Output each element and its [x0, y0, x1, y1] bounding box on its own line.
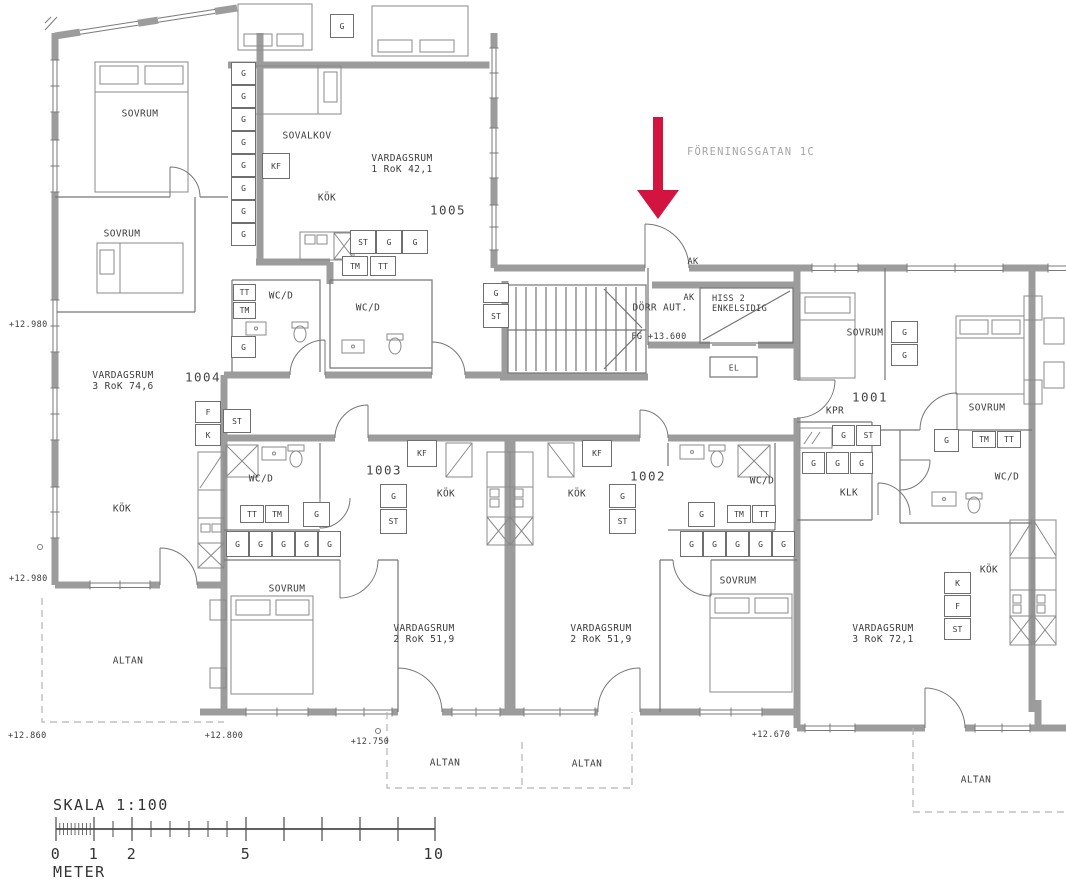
room-name: VARDAGSRUM: [852, 623, 913, 634]
apartment-number-1004: 1004: [185, 370, 221, 385]
cabinet-st: ST: [380, 509, 407, 534]
cabinet-g: G: [272, 531, 295, 557]
cabinet-g: G: [295, 531, 318, 557]
room-label-altan: ALTAN: [572, 759, 603, 770]
room-label-altan: ALTAN: [113, 656, 144, 667]
cabinet-st: ST: [856, 425, 881, 446]
walls: [55, 8, 1066, 728]
dryer-tt: TT: [370, 256, 396, 276]
room-label-vardagsrum-1002: VARDAGSRUM 2 RoK 51,9: [570, 623, 631, 645]
room-label-kpr: KPR: [826, 406, 844, 417]
fridge-freezer-kf: KF: [262, 153, 290, 179]
ak-label: AK: [687, 257, 698, 267]
cabinet-g: G: [726, 531, 749, 557]
cabinet-g: G: [483, 283, 509, 303]
scale-title: SKALA 1:100: [53, 796, 169, 814]
cabinet-g: G: [609, 484, 636, 508]
cabinet-g: G: [231, 62, 256, 85]
room-label-sovrum: SOVRUM: [269, 584, 306, 595]
room-label-wcd: WC/D: [249, 474, 273, 485]
cabinet-g: G: [231, 336, 256, 358]
cabinet-g: G: [749, 531, 772, 557]
cabinet-g: G: [303, 502, 330, 527]
washer-tm: TM: [342, 256, 368, 276]
room-name: VARDAGSRUM: [570, 623, 631, 634]
cabinet-st: ST: [223, 409, 251, 433]
cabinet-g: G: [688, 502, 715, 527]
room-label-wcd: WC/D: [269, 291, 293, 302]
cabinet-g: G: [934, 429, 959, 452]
cabinet-g: G: [802, 452, 825, 474]
cabinet-g: G: [249, 531, 272, 557]
room-label-altan: ALTAN: [430, 758, 461, 769]
cabinet-g: G: [231, 200, 256, 223]
cabinet-g: G: [850, 452, 873, 474]
cabinet-g: G: [231, 223, 256, 246]
dryer-tt: TT: [240, 505, 264, 523]
bed: [97, 243, 183, 293]
cabinet-g: G: [226, 531, 249, 557]
elevation-label: +12.860: [8, 731, 47, 741]
room-label-vardagsrum-1004: VARDAGSRUM 3 RoK 74,6: [92, 370, 153, 392]
apartment-number-1002: 1002: [630, 469, 666, 484]
apartment-number-1001: 1001: [852, 390, 888, 405]
cabinet-g: G: [231, 131, 256, 154]
room-size: 1 RoK 42,1: [371, 164, 432, 175]
cabinet-st: ST: [350, 230, 376, 254]
cabinet-st: ST: [944, 618, 971, 640]
room-label-sovrum: SOVRUM: [720, 576, 757, 587]
scale-tick-2: 2: [127, 845, 138, 863]
floor-plan: G G G G G G G G G KF ST G G TM TT TT TM …: [0, 0, 1066, 889]
fridge-freezer-kf: KF: [582, 440, 612, 467]
ak-label: AK: [683, 293, 694, 303]
dryer-tt: TT: [997, 431, 1021, 448]
stairs: [508, 285, 646, 373]
room-label-kok: KÖK: [568, 489, 586, 500]
bed: [95, 62, 188, 192]
room-label-vardagsrum-1003: VARDAGSRUM 2 RoK 51,9: [393, 623, 454, 645]
elevator-label: HISS 2 ENKELSIDIG: [712, 294, 767, 314]
cabinet-g: G: [891, 344, 918, 366]
room-label-sovrum: SOVRUM: [969, 403, 1006, 414]
cabinet-g: G: [380, 484, 407, 508]
elevator-line2: ENKELSIDIG: [712, 304, 767, 314]
fridge-k: K: [195, 424, 221, 446]
cabinet-g: G: [772, 531, 795, 557]
room-label-vardagsrum-1001: VARDAGSRUM 3 RoK 72,1: [852, 623, 913, 645]
street-address-label: FÖRENINGSGATAN 1C: [687, 146, 815, 158]
cabinet-g: G: [826, 452, 849, 474]
cabinet-g: G: [402, 230, 428, 254]
bed: [238, 4, 312, 50]
room-size: 3 RoK 72,1: [852, 634, 913, 645]
bed: [710, 594, 792, 692]
cabinet-g: G: [231, 177, 256, 200]
cabinet-g: G: [832, 425, 855, 446]
bed: [372, 6, 468, 56]
location-arrow: [637, 117, 679, 219]
elevation-label: +12.980: [9, 574, 48, 584]
washer-tm: TM: [727, 505, 751, 523]
room-size: 2 RoK 51,9: [570, 634, 631, 645]
room-name: VARDAGSRUM: [393, 623, 454, 634]
washer-tm: TM: [233, 302, 256, 319]
room-size: 3 RoK 74,6: [92, 381, 153, 392]
scale-tick-10: 10: [423, 845, 444, 863]
room-label-wcd: WC/D: [750, 476, 774, 487]
scale-tick-1: 1: [89, 845, 100, 863]
room-name: VARDAGSRUM: [92, 370, 153, 381]
cabinet-g: G: [703, 531, 726, 557]
washer-tm: TM: [972, 431, 996, 448]
dryer-tt: TT: [233, 284, 256, 301]
entrance-door-label: DÖRR AUT.: [632, 303, 687, 314]
room-label-kok: KÖK: [318, 193, 336, 204]
chair: [1044, 362, 1064, 388]
apartment-number-1005: 1005: [430, 203, 466, 218]
bathroom-fixtures: [226, 322, 982, 513]
fridge-freezer-kf: KF: [407, 440, 437, 467]
cabinet-g: G: [231, 108, 256, 131]
room-label-sovrum: SOVRUM: [847, 328, 884, 339]
freezer-f: F: [195, 401, 221, 423]
bed: [255, 66, 341, 114]
elevation-label: +12.670: [752, 730, 791, 740]
scale-bar: [56, 817, 435, 841]
scale-tick-5: 5: [241, 845, 252, 863]
cabinet-st: ST: [483, 304, 509, 328]
room-label-vardagsrum-1005: VARDAGSRUM 1 RoK 42,1: [371, 153, 432, 175]
cabinet-g: G: [318, 531, 341, 557]
elevation-label: +12.980: [9, 320, 48, 330]
room-label-sovalkov: SOVALKOV: [283, 131, 332, 142]
fridge-k: K: [944, 572, 971, 594]
dryer-tt: TT: [752, 505, 776, 523]
room-label-kok: KÖK: [113, 504, 131, 515]
cabinet-g: G: [680, 531, 703, 557]
room-label-sovrum: SOVRUM: [122, 109, 159, 120]
freezer-f: F: [944, 595, 971, 617]
elevator-line1: HISS 2: [712, 294, 767, 304]
cabinet-g: G: [231, 154, 256, 177]
outer-walls: [55, 8, 1066, 728]
chair: [1044, 318, 1064, 344]
room-label-wcd: WC/D: [995, 472, 1019, 483]
cabinet-g: G: [231, 85, 256, 108]
room-label-altan: ALTAN: [961, 775, 992, 786]
elevation-label: +12.750: [351, 737, 390, 747]
cabinet-st: ST: [609, 509, 636, 534]
el-label: EL: [729, 364, 739, 373]
apartment-number-1003: 1003: [366, 463, 402, 478]
room-label-kok: KÖK: [437, 489, 455, 500]
room-label-sovrum: SOVRUM: [104, 229, 141, 240]
scale-unit: METER: [53, 863, 106, 881]
washer-tm: TM: [265, 505, 289, 523]
room-name: VARDAGSRUM: [371, 153, 432, 164]
room-label-wcd: WC/D: [356, 303, 380, 314]
room-label-klk: KLK: [840, 488, 858, 499]
cabinet-g: G: [891, 321, 918, 343]
room-size: 2 RoK 51,9: [393, 634, 454, 645]
elevation-label: +12.800: [205, 731, 244, 741]
cabinet-g: G: [376, 230, 402, 254]
room-label-kok: KÖK: [980, 565, 998, 576]
plan-drawing: [0, 0, 1066, 889]
cabinet-g: G: [330, 14, 354, 38]
scale-tick-0: 0: [51, 845, 62, 863]
floor-level-label: FG +13.600: [631, 332, 686, 342]
